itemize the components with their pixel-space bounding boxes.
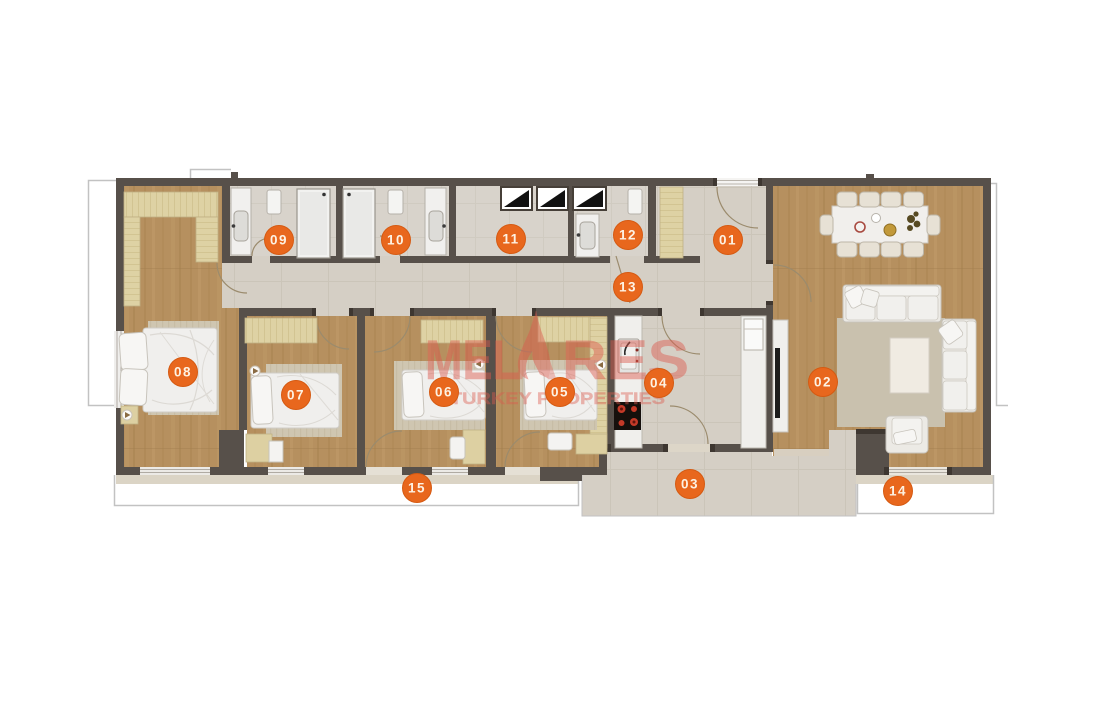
svg-text:11: 11 (502, 232, 519, 247)
svg-text:15: 15 (408, 481, 426, 496)
svg-text:03: 03 (681, 477, 699, 492)
svg-text:09: 09 (270, 233, 288, 248)
svg-text:10: 10 (387, 233, 405, 248)
svg-text:04: 04 (650, 376, 668, 391)
svg-text:02: 02 (814, 375, 832, 390)
svg-text:06: 06 (435, 385, 453, 400)
svg-text:01: 01 (719, 233, 737, 248)
svg-text:14: 14 (889, 484, 907, 499)
svg-text:05: 05 (551, 385, 569, 400)
svg-text:07: 07 (287, 388, 305, 403)
svg-text:08: 08 (174, 365, 192, 380)
svg-text:12: 12 (619, 228, 637, 243)
svg-text:13: 13 (619, 280, 637, 295)
